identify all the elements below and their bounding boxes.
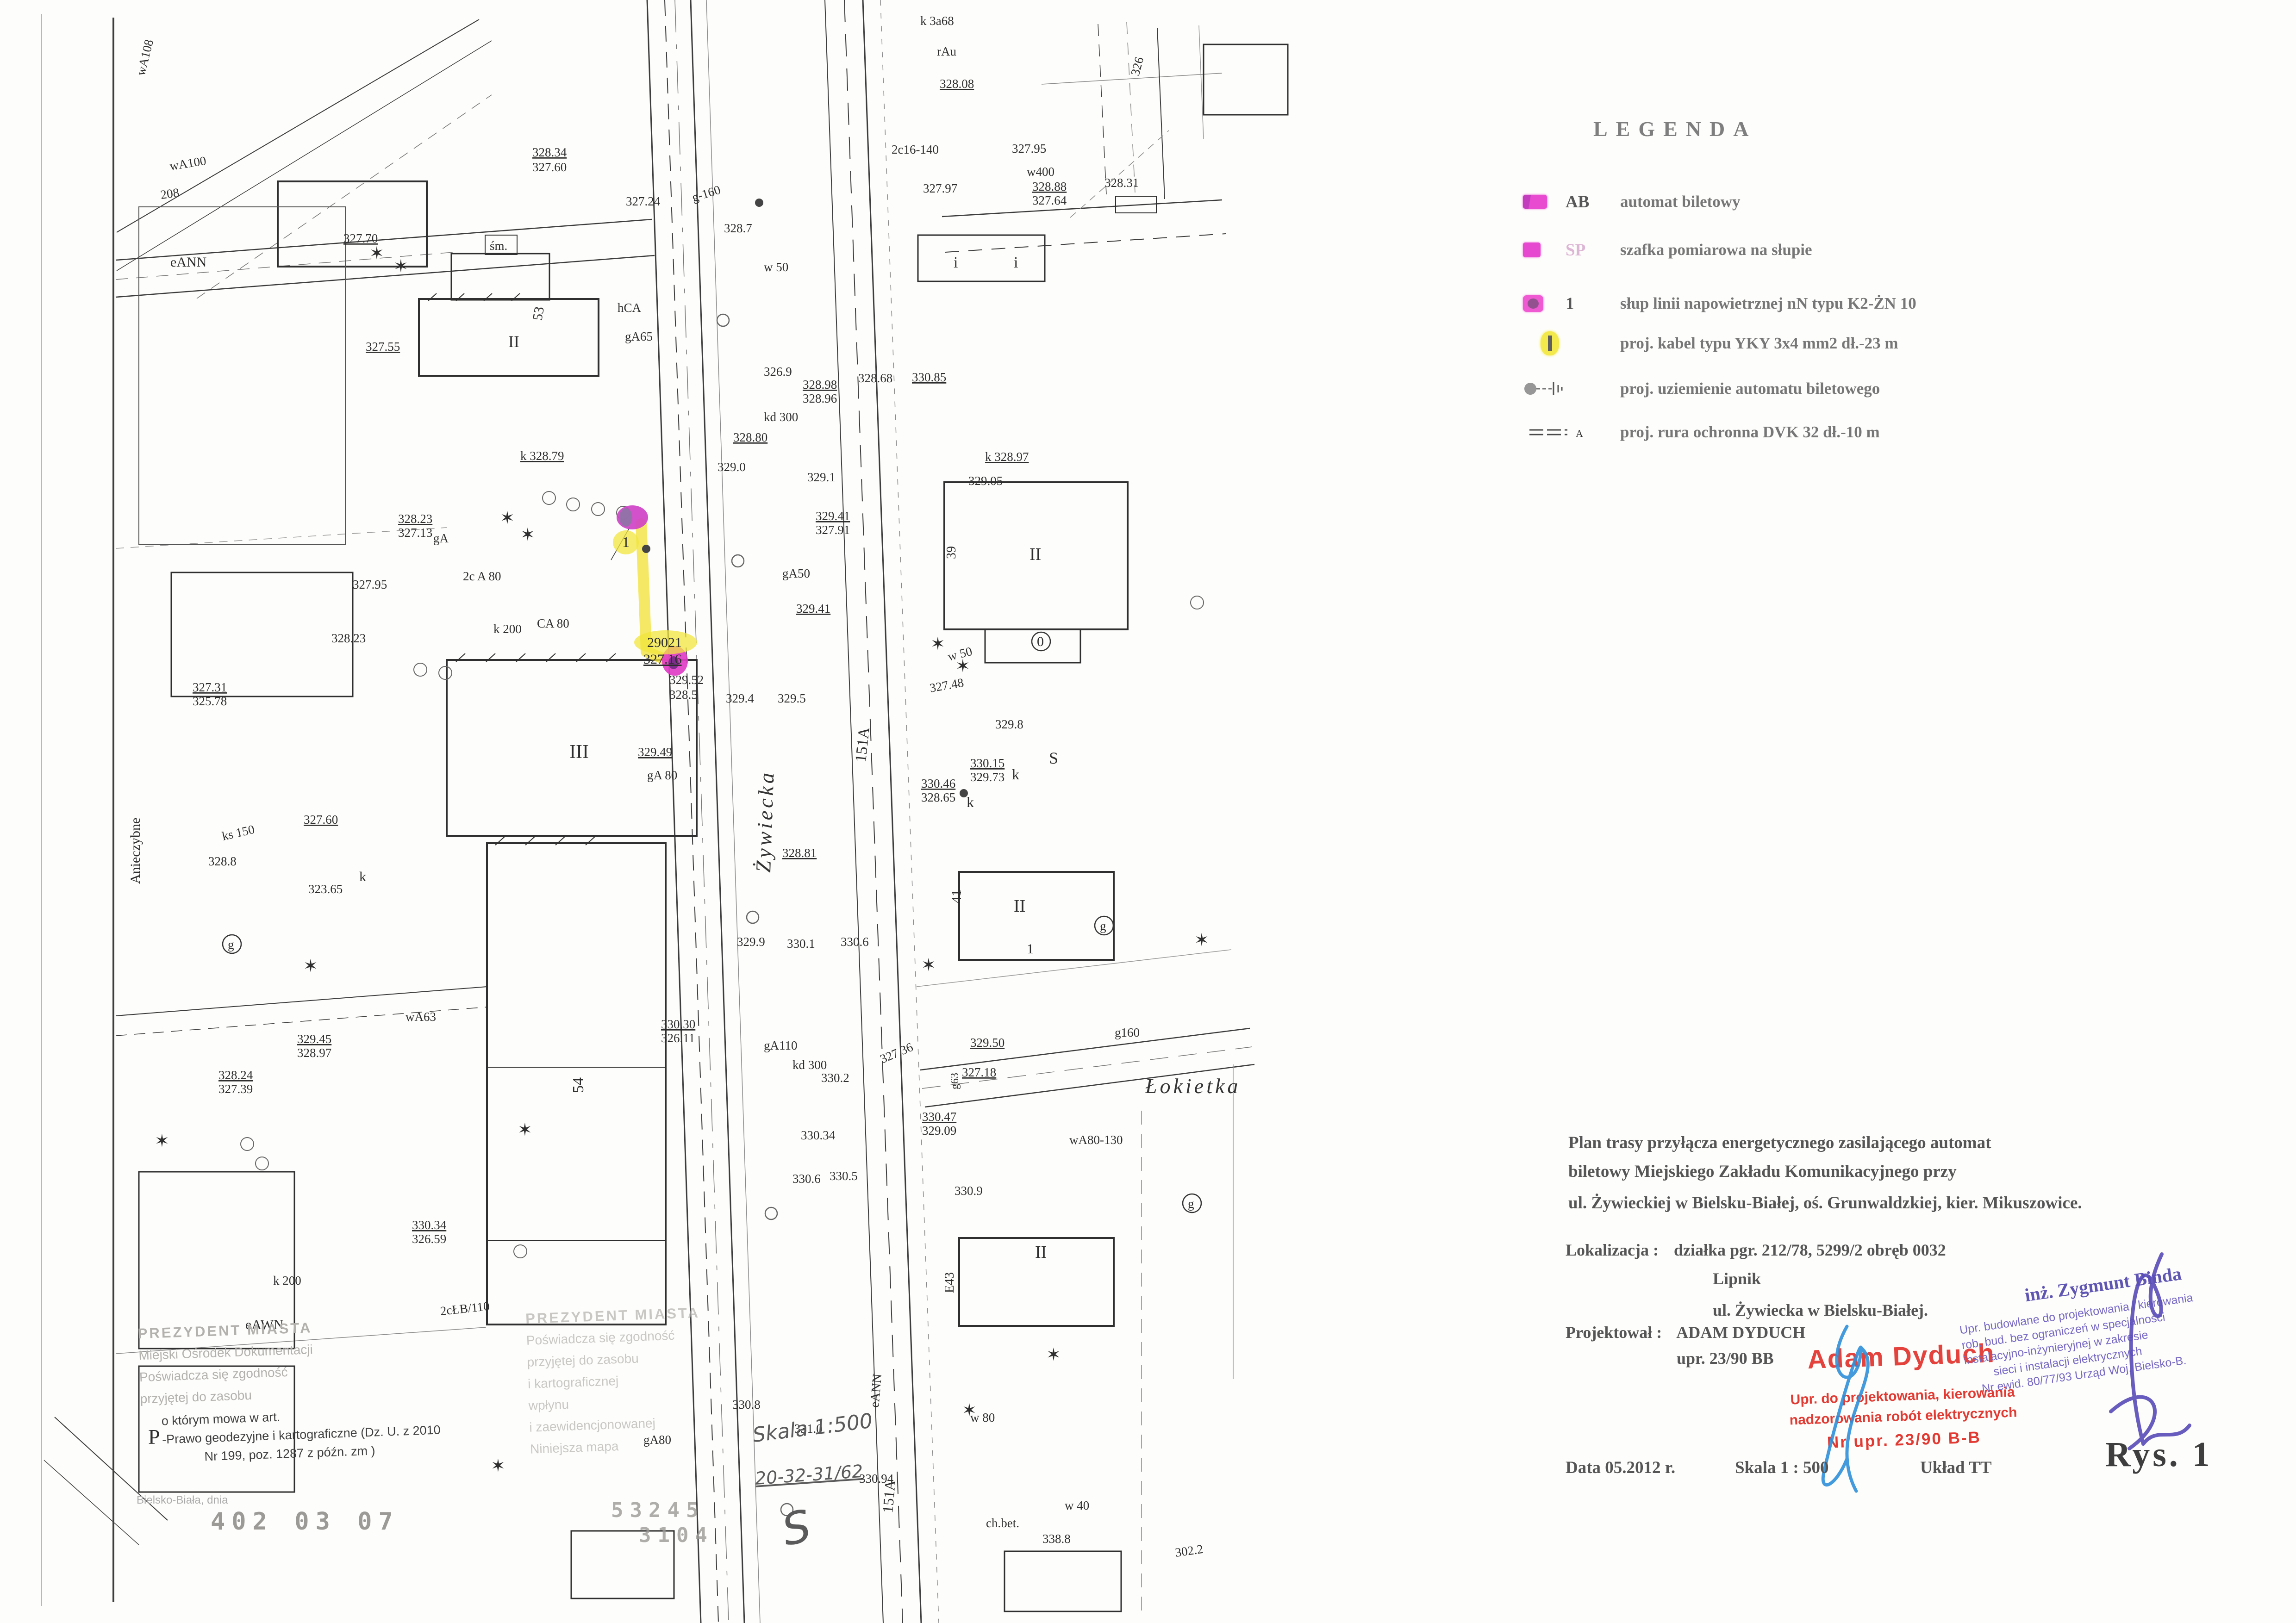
map-label: 329.52	[669, 673, 704, 687]
map-label: 327.95	[353, 578, 387, 591]
map-label: gA65	[625, 330, 653, 343]
map-label: 327.60	[532, 160, 567, 174]
map-label: 327.95	[1012, 142, 1046, 155]
map-label: wA108	[134, 38, 156, 77]
map-label: k 3a68	[920, 14, 954, 28]
tree-icon: ✶	[1194, 931, 1209, 950]
map-label: gA	[433, 531, 449, 545]
map-label: 41	[949, 889, 964, 903]
tree-icon: ✶	[155, 1132, 169, 1151]
map-label: 329.8	[995, 717, 1023, 731]
map-label: 327.31	[193, 680, 227, 694]
dot-matrix-digits: 3104	[639, 1524, 714, 1547]
map-label: 1	[622, 534, 630, 550]
plan-title-line3: ul. Żywieckiej w Bielsku-Białej, oś. Gru…	[1568, 1193, 2082, 1213]
tree-icon: ✶	[1046, 1345, 1061, 1365]
map-label: k 200	[493, 622, 522, 636]
map-label: g	[228, 938, 234, 951]
map-label: 330.5	[830, 1169, 858, 1183]
map-label: k 200	[273, 1274, 301, 1287]
map-label: śm.	[490, 239, 507, 253]
map-label: 329.05	[968, 474, 1003, 488]
map-label: Łokietka	[1145, 1074, 1241, 1098]
map-label: 326.11	[661, 1031, 695, 1045]
designer-value: ADAM DYDUCH	[1676, 1323, 1805, 1342]
map-label: 330.9	[955, 1184, 983, 1198]
map-label: 54	[570, 1077, 587, 1093]
map-label: 326.59	[412, 1232, 446, 1246]
legend-code: SP	[1566, 240, 1620, 260]
map-label: 329.4	[726, 691, 754, 705]
map-label: 327.39	[218, 1082, 253, 1096]
tree-icon: ✶	[930, 634, 945, 654]
legend-item-grounding: proj. uziemienie automatu biletowego	[1523, 376, 1880, 402]
map-label: wA100	[168, 154, 207, 173]
legend-code: 1	[1566, 294, 1620, 314]
map-label: 327.70	[343, 231, 378, 245]
map-label: 328.8	[208, 854, 237, 868]
location-label: Lokalizacja :	[1566, 1241, 1659, 1259]
conduit-symbol-icon: A	[1523, 423, 1620, 442]
tree-icon: ✶	[500, 509, 515, 528]
map-label: 329.09	[922, 1124, 956, 1138]
map-label: 329.41	[796, 602, 830, 616]
map-label: rAu	[937, 44, 956, 58]
map-label: 2c16-140	[892, 143, 939, 156]
plan-title-line1: Plan trasy przyłącza energetycznego zasi…	[1568, 1133, 1991, 1153]
map-label: 330.34	[412, 1218, 447, 1232]
map-label: 328.81	[782, 846, 817, 860]
map-label: 329.9	[737, 935, 765, 949]
map-label: 330.47	[922, 1110, 956, 1124]
map-label: 326	[1128, 56, 1146, 77]
map-label: 328.34	[532, 145, 567, 159]
map-label: 329.49	[638, 745, 672, 759]
map-label: 338.8	[1042, 1532, 1071, 1546]
legend-code: AB	[1566, 192, 1620, 212]
tree-icon: ✶	[921, 956, 936, 975]
legend: LEGENDA AB automat biletowy SP szafka po…	[1523, 117, 2273, 450]
sp-symbol-icon	[1523, 243, 1566, 257]
registry-stamp-left: PREZYDENT MIASTA Miejski Ośrodek Dokumen…	[137, 1311, 492, 1410]
map-label: k 328.97	[985, 450, 1029, 464]
tree-icon: ✶	[491, 1456, 505, 1476]
map-label: 329.50	[970, 1036, 1004, 1050]
footer-date: Data 05.2012 r.	[1566, 1458, 1675, 1478]
legend-label: automat biletowy	[1620, 193, 1741, 211]
tree-icon: ✶	[520, 525, 535, 545]
map-label: 29021	[647, 635, 682, 650]
legend-label: proj. rura ochronna DVK 32 dł.-10 m	[1620, 423, 1880, 442]
map-label: 328.97	[297, 1046, 331, 1060]
map-label: g	[1100, 919, 1106, 933]
designer-label: Projektował :	[1566, 1323, 1662, 1342]
map-label: 328.96	[803, 392, 837, 405]
map-label: 328.65	[921, 790, 955, 804]
map-label: E43	[942, 1272, 957, 1293]
map-label: wA63	[406, 1010, 436, 1024]
legend-item-pole: 1 słup linii napowietrznej nN typu K2-ŻN…	[1523, 291, 1916, 317]
legend-title: LEGENDA	[1593, 117, 1757, 141]
map-label: 329.0	[717, 460, 746, 474]
scanned-site-plan-page: wA108wA100208eANN327.70328.34327.60śm.k …	[0, 0, 2296, 1623]
map-label: 326.9	[764, 365, 792, 379]
map-label: 327.36	[878, 1040, 915, 1066]
legal-note: o którym mowa w art. -Prawo geodezyjne i…	[161, 1402, 442, 1468]
footer-scale: Skala 1 : 500	[1735, 1458, 1829, 1478]
map-label: 328.68	[858, 371, 892, 385]
map-label: Anieczybne	[128, 818, 143, 884]
map-label: eANN	[867, 1373, 885, 1408]
map-label: g	[1188, 1197, 1194, 1211]
map-label: 327.60	[304, 813, 338, 827]
map-label: k	[1012, 766, 1019, 783]
map-label: 329.1	[807, 470, 836, 484]
legend-label: słup linii napowietrznej nN typu K2-ŻN 1…	[1620, 294, 1916, 313]
map-label: i	[1014, 254, 1018, 271]
map-label: kd 300	[792, 1058, 827, 1072]
map-label: 328.23	[331, 631, 366, 645]
pole-1	[642, 545, 650, 553]
map-label: 327.13	[398, 526, 432, 540]
dot-matrix-digits: 402 03 07	[211, 1508, 399, 1536]
map-label: 328.23	[398, 512, 432, 526]
map-label: gA 80	[647, 768, 677, 782]
map-label: 327.97	[923, 181, 957, 195]
map-label: 208	[160, 186, 180, 202]
map-label: 2c A 80	[463, 569, 501, 583]
map-label: k 328.79	[520, 449, 564, 463]
date-note: Bielsko-Biała, dnia	[137, 1494, 228, 1507]
map-label: 0	[1037, 634, 1044, 649]
map-label: ks 150	[221, 822, 256, 843]
tree-icon: ✶	[955, 657, 970, 676]
map-label: kd 300	[764, 410, 798, 424]
map-label: 328.08	[940, 77, 974, 91]
map-label: Żywiecka	[751, 770, 779, 873]
map-label: eANN	[170, 255, 206, 270]
legend-item-cable: proj. kabel typu YKY 3x4 mm2 dł.-23 m	[1523, 330, 1898, 356]
tree-icon: ✶	[518, 1120, 532, 1140]
map-label: 328.88	[1032, 180, 1067, 193]
map-label: II	[1035, 1243, 1047, 1262]
map-label: 329.73	[970, 770, 1004, 784]
map-label: g-160	[690, 183, 722, 205]
figure-number: Rys. 1	[2105, 1435, 2213, 1475]
tree-icon: ✶	[962, 1401, 977, 1420]
map-label: g160	[1115, 1026, 1140, 1039]
legend-item-sp: SP szafka pomiarowa na słupie	[1523, 237, 1812, 263]
map-label: 327.24	[626, 194, 661, 208]
map-label: 302.2	[1174, 1542, 1204, 1560]
map-label: II	[1014, 896, 1025, 916]
map-label: 330.1	[787, 937, 815, 951]
map-label: 329.5	[778, 691, 806, 705]
map-label: 151A	[879, 1480, 898, 1514]
map-label: 327.91	[816, 523, 850, 537]
map-label: k	[967, 794, 974, 810]
map-label: i	[954, 254, 958, 271]
location-row: Lokalizacja : działka pgr. 212/78, 5299/…	[1566, 1240, 1946, 1260]
map-label: 328.98	[803, 378, 837, 392]
svg-text:A: A	[1576, 428, 1583, 439]
map-label: S	[778, 1500, 816, 1556]
registry-stamp-center: PREZYDENT MIASTA Poświadcza się zgodność…	[525, 1298, 817, 1460]
map-label: S	[1049, 749, 1058, 767]
map-label: 323.65	[308, 882, 343, 896]
map-label: 330.2	[821, 1071, 849, 1085]
legend-item-conduit: A proj. rura ochronna DVK 32 dł.-10 m	[1523, 419, 1880, 445]
legend-item-ab: AB automat biletowy	[1523, 189, 1741, 215]
map-label: 328.5	[669, 688, 698, 702]
map-label: w 40	[1065, 1499, 1089, 1512]
tree-icon: ✶	[393, 257, 408, 276]
grounding-symbol-icon	[1523, 379, 1620, 398]
map-label: 328.80	[733, 430, 767, 444]
pole-symbol-icon	[1523, 295, 1566, 312]
map-label: 151A	[852, 726, 873, 763]
tree-icon: ✶	[303, 957, 318, 976]
map-label: 20-32-31/62	[755, 1461, 864, 1489]
map-label: 39	[944, 546, 959, 559]
map-label: 330.15	[970, 756, 1004, 770]
map-label: 327.16	[643, 652, 682, 667]
plan-title-line2: biletowy Miejskiego Zakładu Komunikacyjn…	[1568, 1162, 1957, 1181]
map-label: 325.78	[193, 694, 227, 708]
map-label: 1	[1027, 941, 1034, 957]
designer-row: Projektował : ADAM DYDUCH	[1566, 1323, 1805, 1342]
map-label: 328.31	[1104, 176, 1139, 190]
map-label: 327.18	[962, 1065, 996, 1079]
map-label: 329.41	[816, 509, 850, 523]
map-label: gA50	[782, 566, 810, 580]
location-value2: Lipnik	[1713, 1269, 1761, 1288]
location-value3: ul. Żywiecka w Bielsku-Białej.	[1713, 1300, 1928, 1320]
map-label: III	[569, 741, 589, 763]
purple-signature	[2083, 1250, 2203, 1462]
map-label: 330.6	[792, 1172, 821, 1186]
map-label: 330.34	[801, 1128, 836, 1142]
dot-matrix-digits: 53245	[611, 1499, 705, 1522]
map-label: k	[359, 869, 366, 884]
location-value: działka pgr. 212/78, 5299/2 obręb 0032	[1674, 1241, 1946, 1259]
map-label: II	[508, 332, 519, 351]
map-label: 329.45	[297, 1032, 331, 1046]
map-label: 330.30	[661, 1017, 695, 1031]
legend-label: proj. kabel typu YKY 3x4 mm2 dł.-23 m	[1620, 334, 1898, 353]
map-label: 330.6	[841, 935, 869, 949]
map-label: 327.48	[929, 675, 965, 695]
map-label: w400	[1027, 165, 1054, 179]
ab-symbol-icon	[1523, 195, 1566, 209]
map-label: ch.bet.	[986, 1516, 1019, 1530]
map-label: wA80-130	[1069, 1133, 1123, 1147]
cable-symbol-icon	[1523, 331, 1620, 355]
map-label: 330.85	[912, 370, 946, 384]
footer-grid: Układ TT	[1920, 1458, 1992, 1478]
map-label: CA 80	[537, 616, 569, 630]
map-label: hCA	[618, 301, 642, 315]
map-label: g63	[949, 1073, 961, 1089]
map-label: II	[1029, 545, 1041, 564]
map-label: 330.46	[921, 777, 955, 790]
map-label: 328.7	[724, 221, 752, 235]
legend-label: proj. uziemienie automatu biletowego	[1620, 379, 1880, 398]
map-label: 328.24	[218, 1068, 253, 1082]
map-label: 53	[530, 305, 547, 322]
map-label: 327.55	[366, 340, 400, 354]
map-label: 327.64	[1032, 193, 1067, 207]
legend-label: szafka pomiarowa na słupie	[1620, 241, 1812, 259]
tree-icons: ✶✶✶✶✶✶✶✶✶✶✶✶✶✶	[155, 244, 1209, 1476]
map-label: gA110	[764, 1038, 798, 1052]
tree-icon: ✶	[369, 244, 384, 263]
map-label: P	[148, 1425, 160, 1449]
map-label: w 50	[764, 260, 788, 274]
